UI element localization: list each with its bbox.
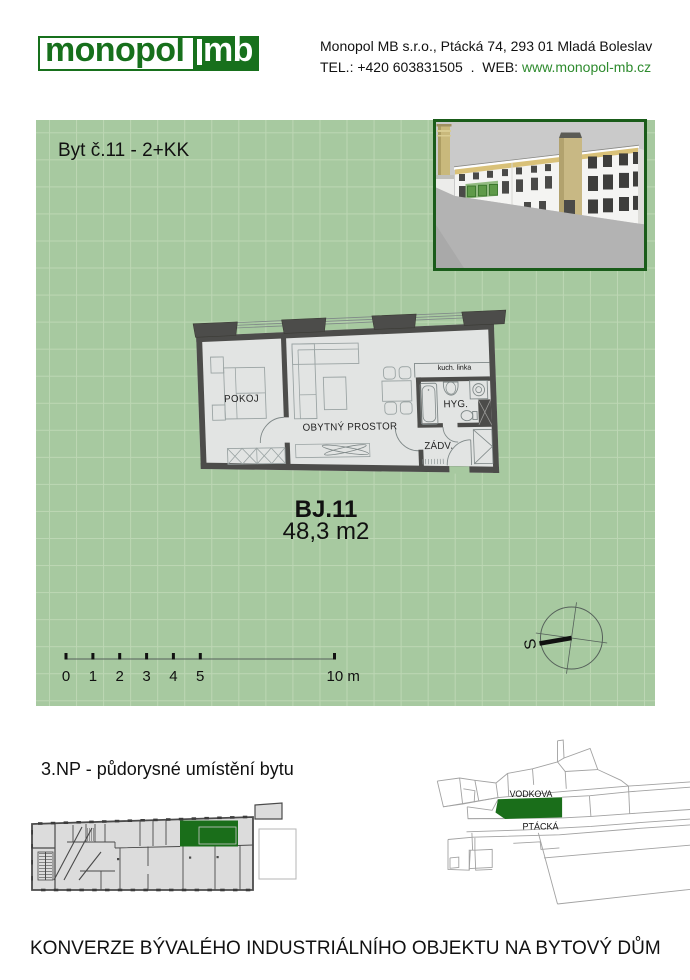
svg-text:VODKOVA: VODKOVA <box>510 789 553 799</box>
svg-text:10 m: 10 m <box>327 668 360 685</box>
svg-text:4: 4 <box>169 668 177 685</box>
svg-text:0: 0 <box>62 668 70 685</box>
svg-text:5: 5 <box>196 668 204 685</box>
svg-text:2: 2 <box>116 668 124 685</box>
svg-text:PTÁCKÁ: PTÁCKÁ <box>522 822 558 832</box>
svg-text:1: 1 <box>89 668 97 685</box>
svg-text:OBYTNÝ PROSTOR: OBYTNÝ PROSTOR <box>303 421 398 434</box>
svg-text:3: 3 <box>142 668 150 685</box>
svg-text:kuch. linka: kuch. linka <box>438 362 473 372</box>
svg-text:POKOJ: POKOJ <box>224 393 259 405</box>
svg-text:S: S <box>522 638 540 651</box>
svg-text:HYG.: HYG. <box>443 399 468 411</box>
svg-text:ZÁDV.: ZÁDV. <box>424 441 453 453</box>
